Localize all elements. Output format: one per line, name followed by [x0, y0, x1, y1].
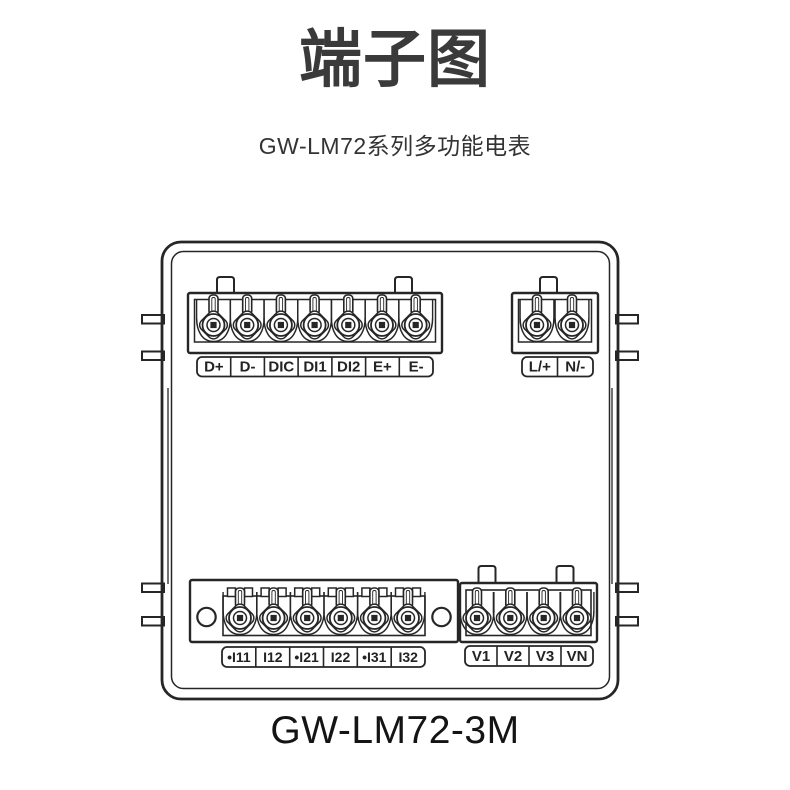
screw-terminal	[560, 588, 594, 635]
terminal-block-comm-di: D+ D- DIC DI1 DI2 E+ E-	[188, 277, 442, 377]
screw-terminal	[197, 295, 231, 342]
terminal-label: V2	[504, 648, 522, 665]
screw-terminal	[527, 588, 561, 635]
terminal-label: I12	[263, 649, 283, 665]
mounting-hole	[197, 608, 215, 626]
screw-terminal	[298, 295, 332, 342]
terminal-label: V1	[472, 648, 490, 665]
terminal-label: N/-	[565, 359, 585, 376]
terminal-label: •I21	[294, 649, 319, 665]
latch-tab	[479, 566, 496, 583]
terminal-label: •I11	[227, 649, 251, 665]
screw-terminal	[493, 588, 527, 635]
terminal-label: DI2	[337, 359, 360, 376]
mounting-hole	[432, 608, 450, 626]
screw-terminal	[555, 295, 589, 342]
screw-terminal	[365, 295, 399, 342]
terminal-label: E+	[373, 359, 392, 376]
label-strip-voltage: V1 V2 V3 VN	[465, 646, 593, 666]
screw-terminal	[331, 295, 365, 342]
screw-terminal	[264, 295, 298, 342]
terminal-diagram-svg: D+ D- DIC DI1 DI2 E+ E- L/+ N/-	[140, 230, 650, 710]
terminal-block-power: L/+ N/-	[512, 277, 598, 377]
terminal-label: E-	[409, 359, 424, 376]
terminal-label: I22	[331, 649, 351, 665]
terminal-block-voltage: V1 V2 V3 VN	[460, 566, 597, 666]
latch-tab	[217, 277, 234, 294]
terminal-diagram: D+ D- DIC DI1 DI2 E+ E- L/+ N/-	[140, 230, 650, 710]
label-strip-comm-di: D+ D- DIC DI1 DI2 E+ E-	[197, 357, 433, 377]
latch-tab	[395, 277, 412, 294]
screw-terminal	[399, 295, 433, 342]
terminal-label: DIC	[268, 359, 294, 376]
terminal-label: V3	[536, 648, 554, 665]
page-title: 端子图	[0, 26, 790, 94]
screw-terminal	[460, 588, 494, 635]
page-subtitle: GW-LM72系列多功能电表	[0, 134, 790, 159]
screw-terminal	[520, 295, 554, 342]
terminal-label: D+	[204, 359, 224, 376]
model-label: GW-LM72-3M	[0, 711, 790, 750]
terminal-label: L/+	[529, 359, 551, 376]
terminal-label: DI1	[303, 359, 326, 376]
terminal-label: VN	[567, 648, 588, 665]
label-strip-power: L/+ N/-	[522, 357, 593, 377]
terminal-label: •I31	[362, 649, 387, 665]
terminal-label: D-	[240, 359, 256, 376]
latch-tab	[540, 277, 557, 294]
latch-tab	[557, 566, 574, 583]
label-strip-current: •I11 I12 •I21 I22 •I31 I32	[222, 647, 425, 667]
terminal-label: I32	[398, 649, 418, 665]
terminal-block-current: •I11 I12 •I21 I22 •I31 I32	[190, 580, 458, 667]
screw-terminal	[230, 295, 264, 342]
